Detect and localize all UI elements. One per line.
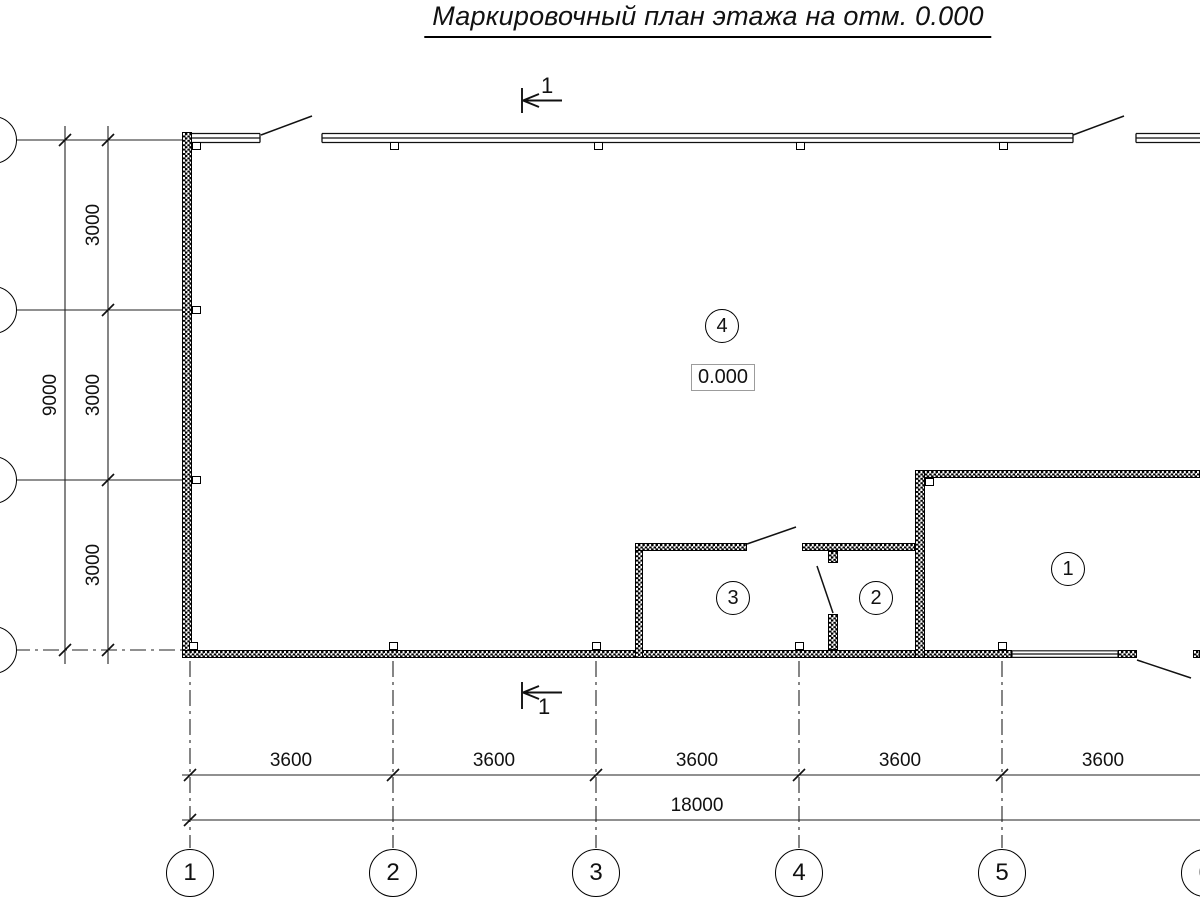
elevation-value: 0.000 — [698, 366, 748, 389]
grid-axis-circle-4: 4 — [775, 849, 823, 897]
room2-door-jamb-bottom — [828, 614, 838, 650]
wall-left-exterior — [182, 132, 192, 658]
floor-plan-sheet: Маркировочный план этажа на отм. 0.000 — [0, 0, 1200, 900]
grid-axis-label: 3 — [589, 859, 602, 887]
grid-axis-label: 1 — [183, 859, 196, 887]
grid-axis-circle-3: 3 — [572, 849, 620, 897]
column-post — [998, 642, 1007, 650]
room-number: 3 — [727, 587, 738, 610]
room-circle-1: 1 — [1051, 552, 1085, 586]
dim-row-3: 3000 — [83, 544, 105, 586]
room1-left-wall — [915, 470, 925, 658]
dim-bay-3: 3600 — [676, 750, 718, 772]
section-marks — [522, 88, 562, 709]
grid-axis-label: 4 — [792, 859, 805, 887]
room-circle-3: 3 — [716, 581, 750, 615]
grid-axis-circle-1: 1 — [166, 849, 214, 897]
section-label-top: 1 — [541, 73, 553, 99]
wall-mark-post — [192, 476, 201, 484]
column-post — [796, 142, 805, 150]
elevation-mark: 0.000 — [691, 364, 755, 391]
window-opening — [1012, 651, 1118, 658]
dim-total-width: 18000 — [671, 795, 724, 817]
grid-axis-label: 2 — [386, 859, 399, 887]
grid-axis-circle-5: 5 — [978, 849, 1026, 897]
dim-total-height: 9000 — [40, 374, 62, 416]
plan-linework — [0, 0, 1200, 900]
dim-row-1: 3000 — [83, 204, 105, 246]
dim-bay-5: 3600 — [1082, 750, 1124, 772]
room1-corner-post — [925, 478, 934, 486]
room2-door-jamb-top — [828, 551, 838, 563]
dimension-ticks — [59, 134, 1008, 826]
column-post — [192, 142, 201, 150]
room3-top-wall — [635, 543, 747, 551]
room3-left-wall — [635, 543, 643, 658]
dim-bay-4: 3600 — [879, 750, 921, 772]
column-post — [795, 642, 804, 650]
dim-row-2: 3000 — [83, 374, 105, 416]
column-post — [390, 142, 399, 150]
column-post — [389, 642, 398, 650]
wall-mark-post — [192, 306, 201, 314]
dim-bay-1: 3600 — [270, 750, 312, 772]
column-post — [999, 142, 1008, 150]
room-circle-4: 4 — [705, 309, 739, 343]
column-post — [592, 642, 601, 650]
section-label-bottom: 1 — [538, 694, 550, 720]
room-number: 2 — [870, 587, 881, 610]
column-post — [189, 642, 198, 650]
top-facade-band — [192, 134, 1200, 143]
room1-top-wall — [915, 470, 1200, 478]
room2-top-wall — [802, 543, 915, 551]
wall-bottom-exterior — [182, 650, 1012, 658]
dim-bay-2: 3600 — [473, 750, 515, 772]
grid-axis-label: 5 — [995, 859, 1008, 887]
wall-bottom-pier — [1118, 650, 1137, 658]
room-number: 1 — [1062, 558, 1073, 581]
column-post — [594, 142, 603, 150]
wall-bottom-end — [1193, 650, 1200, 658]
room-number: 4 — [716, 315, 727, 338]
grid-axis-circle-2: 2 — [369, 849, 417, 897]
room-circle-2: 2 — [859, 581, 893, 615]
